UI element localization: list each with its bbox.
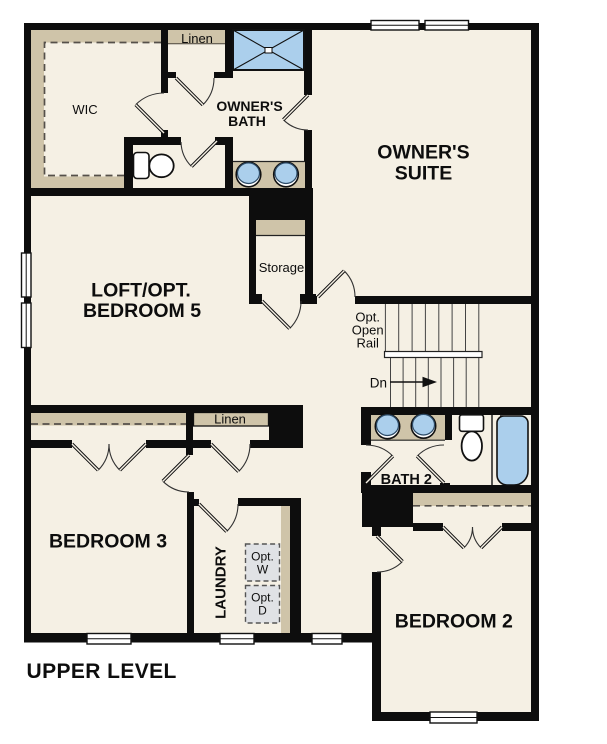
svg-text:BATH: BATH xyxy=(228,113,266,129)
svg-text:BEDROOM 5: BEDROOM 5 xyxy=(83,300,201,322)
svg-text:Opt.: Opt. xyxy=(251,591,274,605)
svg-text:BEDROOM 2: BEDROOM 2 xyxy=(395,610,513,632)
svg-text:Linen: Linen xyxy=(181,31,213,46)
svg-text:UPPER LEVEL: UPPER LEVEL xyxy=(27,660,177,683)
svg-text:LAUNDRY: LAUNDRY xyxy=(212,546,229,619)
svg-text:Dn: Dn xyxy=(370,375,387,390)
svg-text:Storage: Storage xyxy=(259,260,305,275)
svg-text:W: W xyxy=(257,563,269,577)
svg-text:SUITE: SUITE xyxy=(395,162,452,184)
svg-text:BATH 2: BATH 2 xyxy=(381,472,432,488)
svg-text:WIC: WIC xyxy=(72,102,97,117)
svg-text:Linen: Linen xyxy=(214,411,246,426)
svg-text:BEDROOM 3: BEDROOM 3 xyxy=(49,530,167,552)
svg-text:LOFT/OPT.: LOFT/OPT. xyxy=(91,280,191,302)
svg-text:Rail: Rail xyxy=(356,336,379,351)
svg-text:OWNER'S: OWNER'S xyxy=(216,98,282,114)
svg-text:Opt.: Opt. xyxy=(251,550,274,564)
svg-text:D: D xyxy=(258,604,267,618)
svg-text:OWNER'S: OWNER'S xyxy=(377,142,469,164)
